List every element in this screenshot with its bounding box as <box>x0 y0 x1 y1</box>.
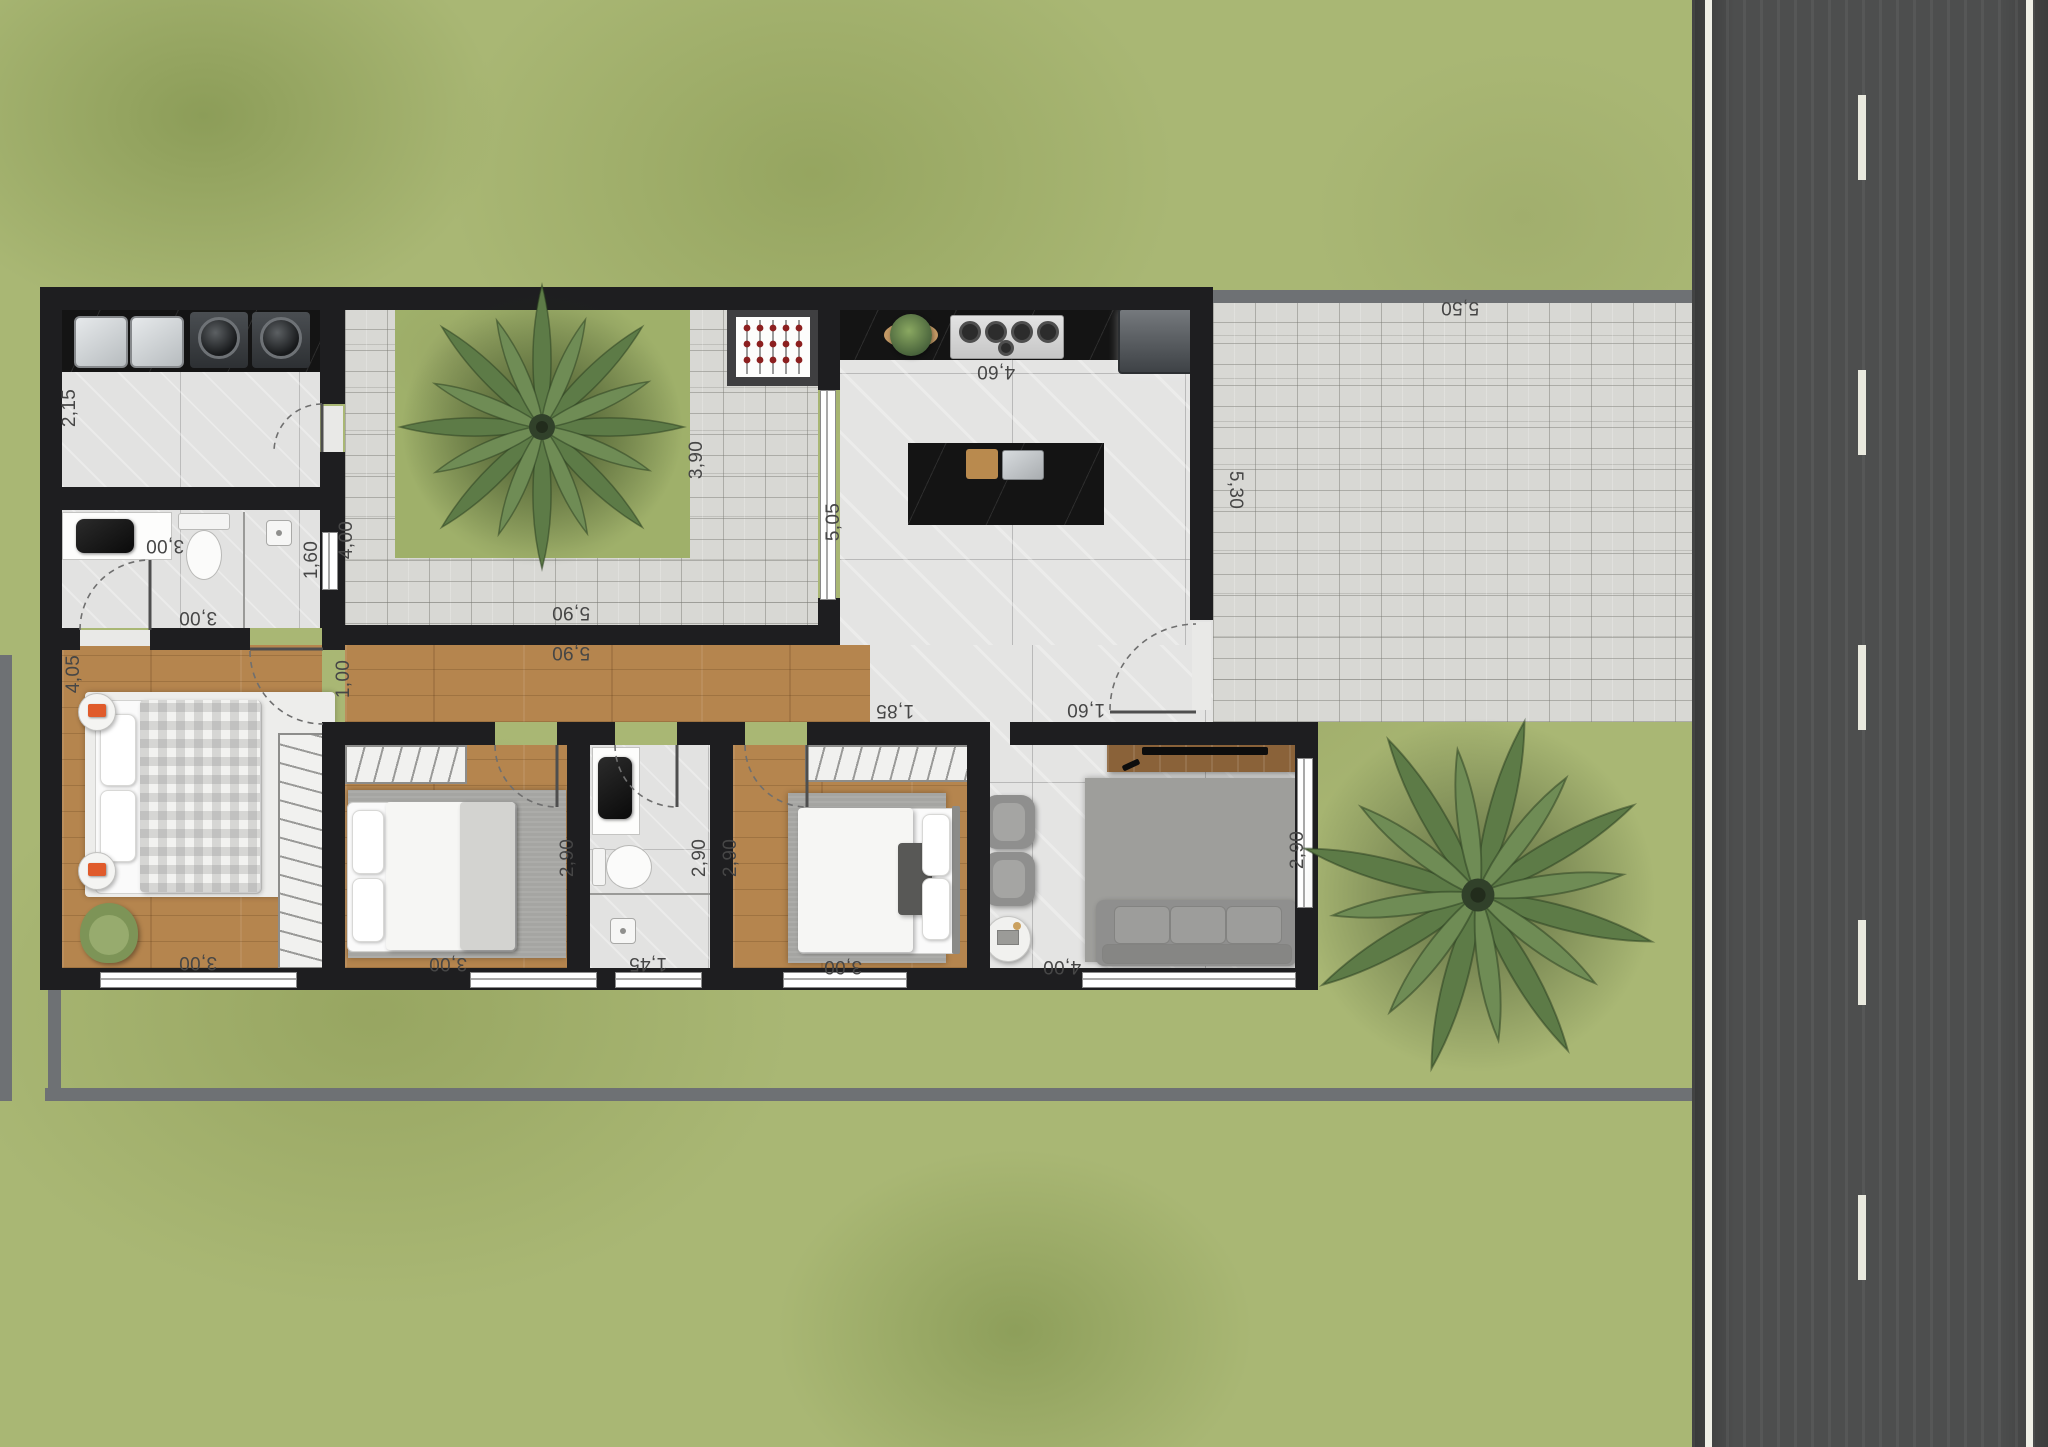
road-edge-line-right <box>2026 0 2033 1447</box>
bathroom2-black-sink <box>598 757 632 819</box>
patio-paving <box>1213 303 1692 722</box>
living-window <box>1082 972 1296 988</box>
bedroom3-pillow-1 <box>922 814 950 876</box>
washer-drum-icon <box>198 317 240 359</box>
bedroom2-window <box>470 972 597 988</box>
wall-bedrooms-top-b <box>557 722 615 745</box>
master-pillow-2 <box>100 790 136 862</box>
dryer-machine <box>252 312 310 368</box>
burner-icon <box>1011 321 1033 343</box>
gas-cooktop <box>950 315 1064 359</box>
bathroom1-shower-divider <box>243 512 245 628</box>
laundry-tub-2 <box>130 316 184 368</box>
hallway-floor <box>345 645 870 722</box>
bedroom3-duvet <box>798 808 913 952</box>
bathroom2-shower-divider <box>590 893 710 895</box>
bathroom1-toilet-bowl <box>186 530 222 580</box>
wall-living-top <box>1010 722 1318 745</box>
bathroom1-shower-head <box>266 520 292 546</box>
master-bedroom-window <box>100 972 297 988</box>
dim-service-width: 3,00 <box>146 534 184 556</box>
dim-hallway-width: 1,00 <box>333 660 355 698</box>
bathroom2-toilet-tank <box>592 848 606 886</box>
bathroom2-shower-head <box>610 918 636 944</box>
kitchen-potted-plant <box>890 314 932 356</box>
floor-plan: 2,15 3,00 4,00 3,90 5,90 5,90 1,60 3,00 … <box>0 0 2048 1447</box>
bedroom3-wardrobe <box>805 745 971 782</box>
courtyard-lawn <box>395 303 690 558</box>
dim-bedroom3-width: 3,00 <box>824 955 862 977</box>
nightstand-book-icon <box>88 863 106 876</box>
dim-bathroom1-shower: 1,60 <box>301 541 323 579</box>
bathroom1-toilet-tank <box>178 513 230 530</box>
wall-master-bedroom2 <box>322 722 345 968</box>
dim-living-width: 4,00 <box>1043 955 1081 977</box>
burner-icon <box>1037 321 1059 343</box>
island-sink <box>1002 450 1044 480</box>
bedroom3-pillow-2 <box>922 878 950 940</box>
laundry-door-threshold <box>322 406 343 452</box>
wall-bedroom3-living <box>967 722 990 968</box>
dim-living-window-width: 2,90 <box>1287 831 1309 869</box>
dryer-drum-icon <box>260 317 302 359</box>
wall-laundry-bottom <box>40 487 345 510</box>
sofa-backrest <box>1102 944 1292 964</box>
wall-bedrooms-top-d <box>807 722 967 745</box>
dim-patio-width: 5,50 <box>1441 296 1479 318</box>
dim-passage-width: 1,85 <box>876 699 914 721</box>
dim-master-width: 3,00 <box>179 951 217 973</box>
armchair-seat <box>993 860 1025 898</box>
nightstand-book-icon <box>88 704 106 717</box>
bedroom3-headboard <box>952 806 960 954</box>
wall-bath1-bottom-a <box>40 628 80 650</box>
bathroom2-window <box>615 972 702 988</box>
living-armchair-1 <box>983 795 1035 849</box>
dim-bedroom2-depth: 2,90 <box>557 839 579 877</box>
master-green-armchair <box>80 903 138 963</box>
bathroom1-black-sink <box>76 519 134 553</box>
wall-kitchen-west-a <box>818 287 840 390</box>
bedroom2-wardrobe <box>345 745 467 784</box>
bedroom2-blanket <box>460 802 515 950</box>
dim-courtyard-walk-depth: 4,00 <box>336 521 358 559</box>
road-center-dashed-line <box>1858 0 1866 1447</box>
dim-bedroom3-depth: 2,90 <box>720 839 742 877</box>
wall-laundry-right-a <box>320 287 345 404</box>
armchair-seat <box>993 803 1025 841</box>
master-wardrobe <box>278 733 324 969</box>
tv <box>1142 747 1268 755</box>
dim-hallway-length: 5,90 <box>552 641 590 663</box>
living-armchair-2 <box>983 852 1035 906</box>
bedroom2-pillow-1 <box>352 810 384 874</box>
island-cutting-board <box>966 449 998 479</box>
boundary-wall-bottom <box>45 1088 1692 1101</box>
kitchen-glass-door <box>820 390 836 600</box>
dim-patio-door-width: 1,60 <box>1067 698 1105 720</box>
sofa <box>1096 900 1296 966</box>
road-edge-line-left <box>1705 0 1712 1447</box>
dim-service-depth: 2,15 <box>59 389 81 427</box>
dim-bedroom2-width: 3,00 <box>429 952 467 974</box>
bathroom2-toilet-bowl <box>606 845 652 889</box>
dim-courtyard-walk-width: 3,90 <box>686 441 708 479</box>
barbecue-grill <box>727 308 819 386</box>
burner-icon <box>959 321 981 343</box>
wall-bath1-bottom-b <box>150 628 250 650</box>
side-table-cup-icon <box>1013 922 1021 930</box>
wall-bath1-bottom-c <box>322 628 345 650</box>
bedroom2-pillow-2 <box>352 878 384 942</box>
dim-kitchen-depth: 5,05 <box>823 503 845 541</box>
sofa-cushion <box>1114 906 1170 944</box>
wall-courtyard-bottom <box>345 625 840 645</box>
sofa-cushion <box>1226 906 1282 944</box>
dim-master-depth: 4,05 <box>63 655 85 693</box>
burner-icon <box>998 340 1014 356</box>
washing-machine <box>190 312 248 368</box>
armchair-seat <box>89 915 129 955</box>
wall-bedrooms-top-c <box>677 722 745 745</box>
laundry-tub-1 <box>74 316 128 368</box>
bathroom1-door-threshold <box>80 630 150 646</box>
refrigerator <box>1118 308 1194 374</box>
dim-bathroom2-depth: 2,90 <box>689 839 711 877</box>
master-duvet <box>140 700 260 892</box>
boundary-wall-connector <box>48 990 61 1088</box>
dim-bathroom1-width: 3,00 <box>179 606 217 628</box>
sofa-cushion <box>1170 906 1226 944</box>
patio-door-threshold <box>1192 622 1211 710</box>
wall-bedrooms-top-a <box>345 722 495 745</box>
dim-bathroom2-width: 1,45 <box>629 952 667 974</box>
dim-patio-depth: 5,30 <box>1224 471 1246 509</box>
side-table-book-icon <box>997 930 1019 945</box>
wall-top <box>40 287 1213 310</box>
street-road <box>1692 0 2048 1447</box>
dim-courtyard-paving-len: 5,90 <box>552 601 590 623</box>
wall-kitchen-right <box>1190 287 1213 620</box>
boundary-wall-left <box>0 655 12 1101</box>
dim-kitchen-width: 4,60 <box>977 360 1015 382</box>
